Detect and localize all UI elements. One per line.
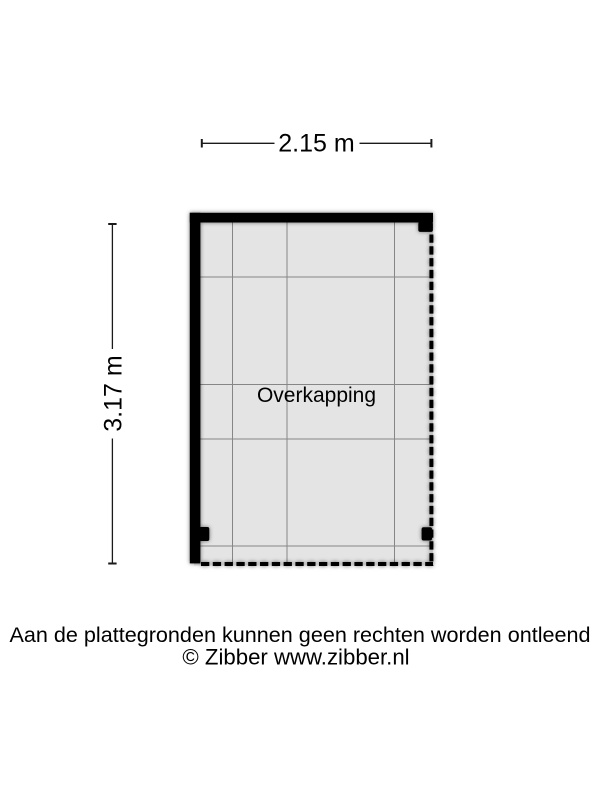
svg-text:Overkapping: Overkapping (257, 384, 376, 407)
svg-text:2.15 m: 2.15 m (278, 130, 354, 158)
svg-text:Aan de plattegronden kunnen ge: Aan de plattegronden kunnen geen rechten… (9, 622, 590, 647)
svg-text:© Zibber www.zibber.nl: © Zibber www.zibber.nl (182, 645, 409, 670)
svg-text:3.17 m: 3.17 m (100, 355, 128, 431)
